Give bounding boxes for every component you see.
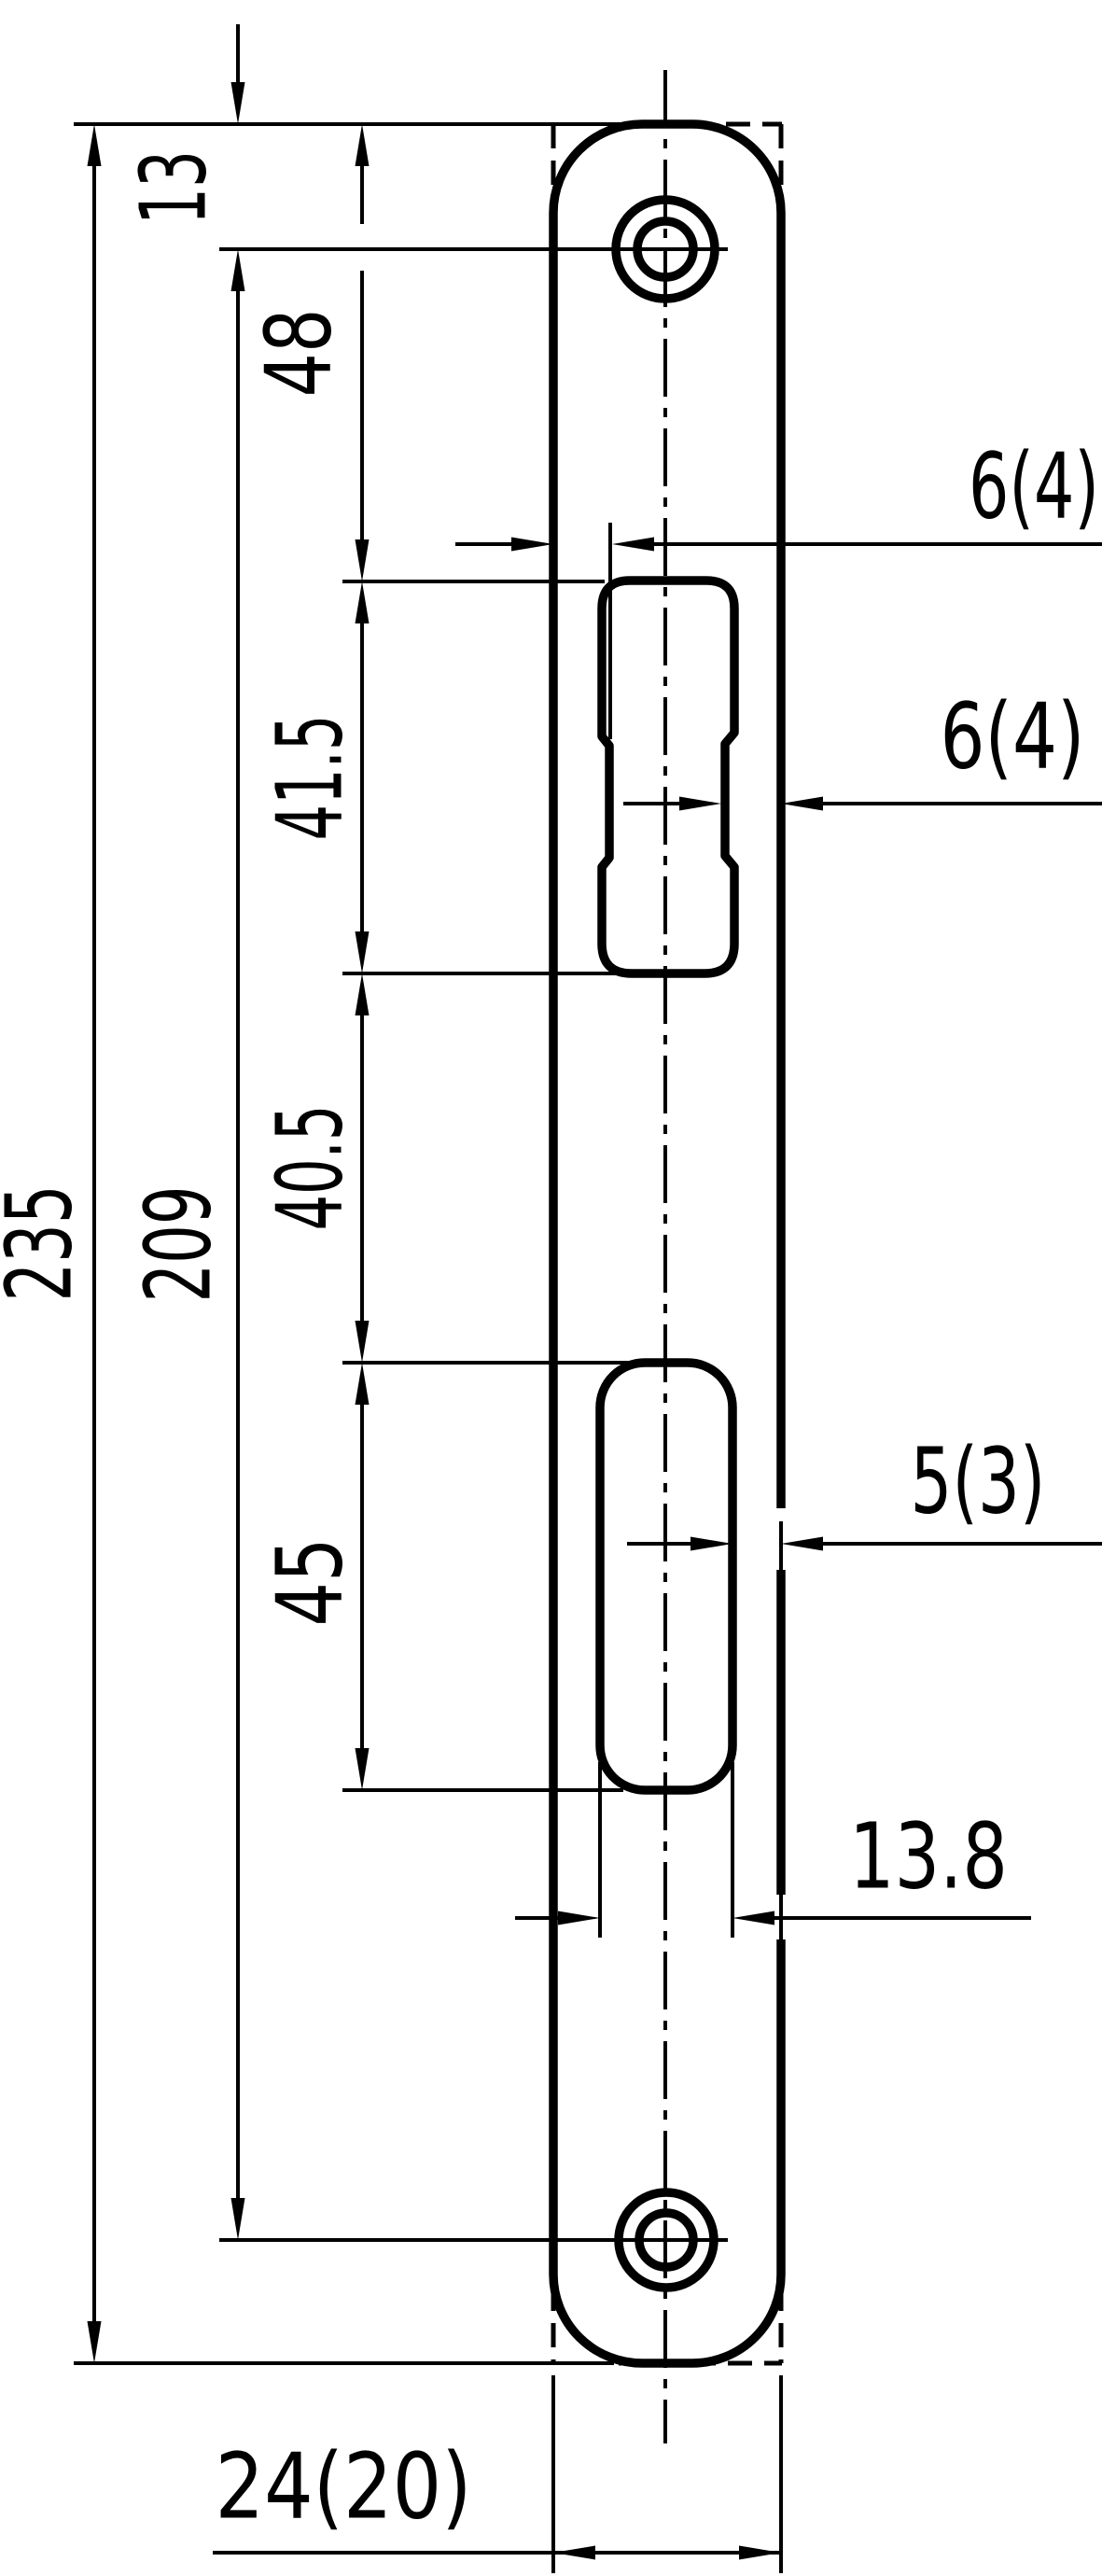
arrowhead-left: [781, 1537, 823, 1551]
arrowhead-left: [732, 1911, 774, 1925]
arrowhead-up: [356, 1363, 370, 1405]
dimension-bolt-right-offset: 5(3): [627, 1429, 1102, 1551]
dimension-top-edge-to-latch-slot: 48: [246, 124, 370, 581]
dim-label-plate-length: 235: [0, 1185, 92, 1302]
arrowhead-down: [231, 2198, 245, 2240]
dimension-hole-spacing: 209: [126, 249, 245, 2240]
dimension-latch-slot-length: 41.5: [258, 581, 370, 973]
dim-label-plate-width: 24(20): [216, 2434, 472, 2540]
dimension-latch-right-offset: 6(4): [623, 684, 1102, 811]
dim-label-bolt-slot-width: 13.8: [849, 1804, 1008, 1910]
arrowhead-left: [553, 2546, 595, 2560]
dimension-bolt-slot-width: 13.8: [515, 1804, 1031, 1925]
arrowhead-right: [739, 2546, 781, 2560]
extension-lines: [74, 124, 781, 2573]
dimension-slot-gap: 40.5: [258, 973, 370, 1363]
dim-label-hole-spacing: 209: [126, 1186, 231, 1303]
dimension-plate-length: 235: [0, 124, 102, 2363]
dim-label-latch-slot-length: 41.5: [258, 715, 363, 841]
arrowhead-right: [558, 1911, 600, 1925]
arrowhead-up: [88, 124, 102, 166]
dimension-plate-width: 24(20): [213, 2434, 781, 2560]
dim-label-latch-right-offset: 6(4): [941, 684, 1085, 790]
arrowhead-down: [356, 931, 370, 973]
dim-label-latch-left-offset: 6(4): [969, 434, 1099, 539]
arrowhead-up: [356, 124, 370, 166]
dimension-bolt-slot-length: 45: [258, 1363, 370, 1790]
dim-label-top-edge-to-hole: 13: [121, 150, 227, 225]
latch-slot: [602, 523, 734, 973]
arrowhead-right: [679, 797, 721, 811]
arrowhead-up: [356, 581, 370, 623]
drawing-page: 235 209 13 48 41.5 40.5 45: [0, 0, 1102, 2576]
arrowhead-down: [356, 1321, 370, 1363]
arrowhead-down: [231, 82, 245, 124]
dim-label-bolt-slot-length: 45: [258, 1538, 363, 1627]
dim-label-top-edge-to-latch-slot: 48: [246, 309, 352, 398]
arrowhead-down: [356, 539, 370, 581]
square-corner-alternative: [553, 124, 782, 2363]
technical-drawing: 235 209 13 48 41.5 40.5 45: [0, 0, 1102, 2576]
arrowhead-right: [511, 538, 553, 552]
arrowhead-left: [612, 538, 654, 552]
arrowhead-up: [231, 249, 245, 291]
arrowhead-down: [88, 2321, 102, 2363]
dim-label-slot-gap: 40.5: [258, 1105, 363, 1231]
arrowhead-up: [356, 973, 370, 1015]
latch-slot-outline: [602, 581, 734, 973]
plate-outline-group: [553, 124, 787, 2363]
dim-label-bolt-right-offset: 5(3): [911, 1429, 1046, 1534]
arrowhead-down: [356, 1748, 370, 1790]
arrowhead-left: [781, 797, 823, 811]
arrowhead-right: [690, 1537, 732, 1551]
